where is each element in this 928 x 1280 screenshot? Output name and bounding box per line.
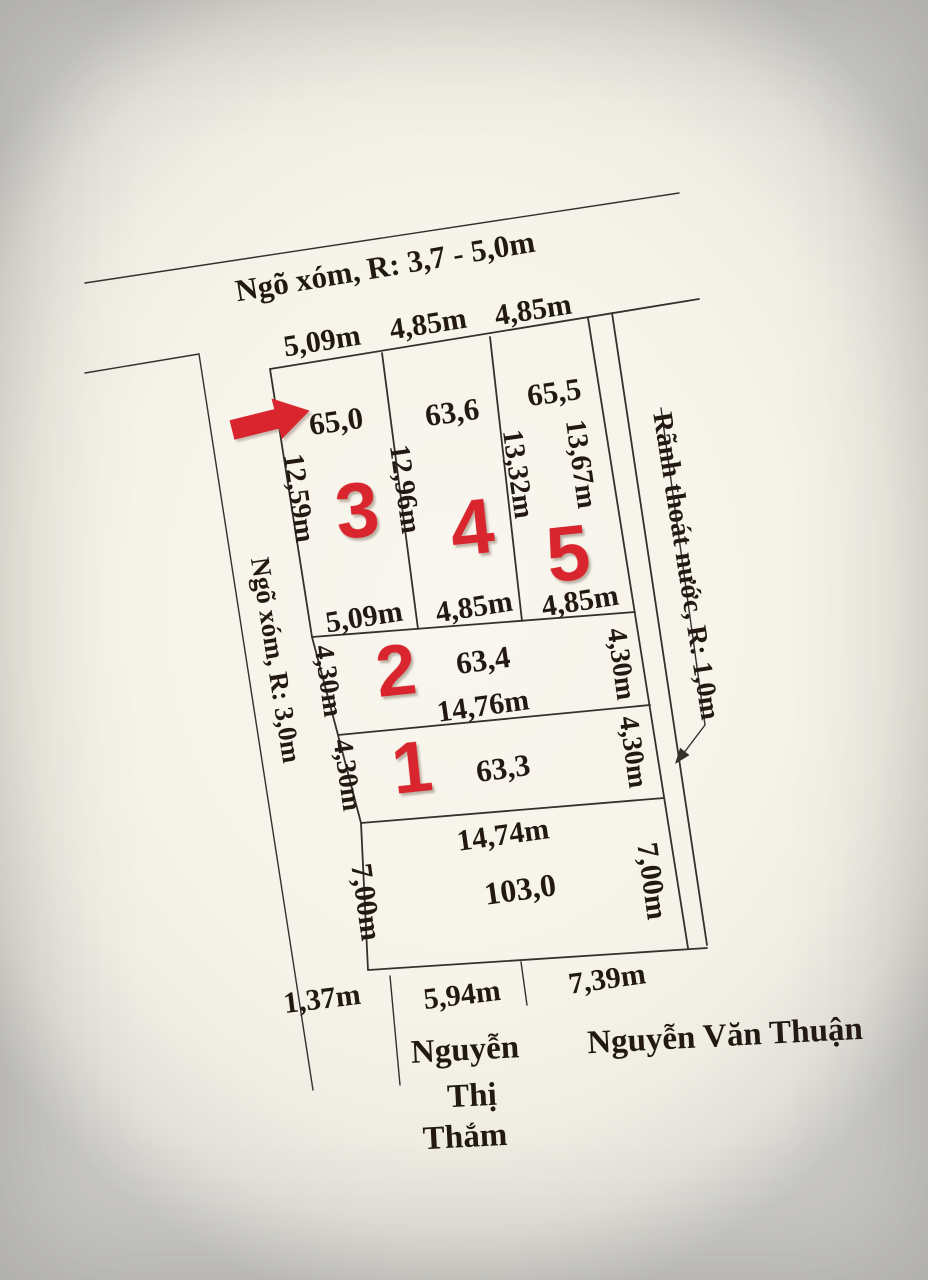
south-segment-tick-1 — [390, 976, 400, 1085]
area-plot1: 63,3 — [474, 747, 533, 789]
dim-southplot-right: 7,00m — [630, 840, 673, 921]
red-arrow-right-icon — [227, 390, 315, 450]
plot3-number: 3 — [331, 464, 383, 556]
dim-plot2-left: 4,30m — [308, 643, 349, 719]
area-southplot: 103,0 — [482, 866, 558, 912]
plot2-number: 2 — [372, 629, 420, 713]
dim-side-13-67: 13,67m — [559, 417, 603, 510]
survey-sketch-photo: Ngõ xóm, R: 3,7 - 5,0m Ngõ xóm, R: 3,0m … — [0, 0, 928, 1280]
neighbor-south-line1: Nguyễn — [410, 1029, 520, 1071]
dim-side-12-96: 12,96m — [383, 442, 427, 535]
dim-south-segment-2: 5,94m — [422, 974, 503, 1016]
dim-plot2-width: 14,76m — [435, 683, 531, 729]
dim-side-12-59: 12,59m — [277, 451, 321, 544]
dim-south-segment-1: 1,37m — [282, 978, 363, 1020]
neighbor-southeast-name: Nguyễn Văn Thuận — [586, 1011, 863, 1061]
drainage-label: Rãnh thoát nước, R: 1,0m — [646, 410, 725, 722]
dim-top-width-plot5: 4,85m — [492, 288, 574, 333]
plot1-number: 1 — [388, 726, 436, 810]
left-road-label: Ngõ xóm, R: 3,0m — [245, 555, 307, 765]
top-road-label: Ngõ xóm, R: 3,7 - 5,0m — [233, 224, 538, 309]
dim-plot2-right: 4,30m — [601, 626, 642, 702]
top-road-lower-edge-west — [85, 354, 199, 373]
neighbor-south-line2: Thị — [446, 1077, 497, 1116]
dim-top-width-plot4: 4,85m — [387, 302, 469, 347]
plot4-number: 4 — [446, 481, 498, 573]
south-segment-tick-2 — [521, 962, 527, 1005]
dim-southplot-top-width: 14,74m — [455, 812, 551, 858]
dim-plot1-right: 4,30m — [613, 714, 654, 790]
area-plot3: 65,0 — [307, 400, 366, 442]
dim-plot1-left: 4,30m — [327, 737, 368, 813]
area-plot2: 63,4 — [454, 639, 513, 681]
area-plot4: 63,6 — [423, 391, 482, 433]
dim-southplot-left: 7,00m — [344, 861, 387, 942]
plot-subdivision-drawing: Ngõ xóm, R: 3,7 - 5,0m Ngõ xóm, R: 3,0m … — [0, 0, 928, 1280]
dim-side-13-32: 13,32m — [496, 427, 540, 520]
neighbor-south-name: Nguyễn Thị Thắm — [410, 1029, 520, 1157]
parcel-south-edge — [368, 948, 707, 970]
area-plot5: 65,5 — [525, 371, 584, 413]
dim-south-segment-3: 7,39m — [566, 957, 647, 1000]
neighbor-south-line3: Thắm — [422, 1117, 508, 1157]
